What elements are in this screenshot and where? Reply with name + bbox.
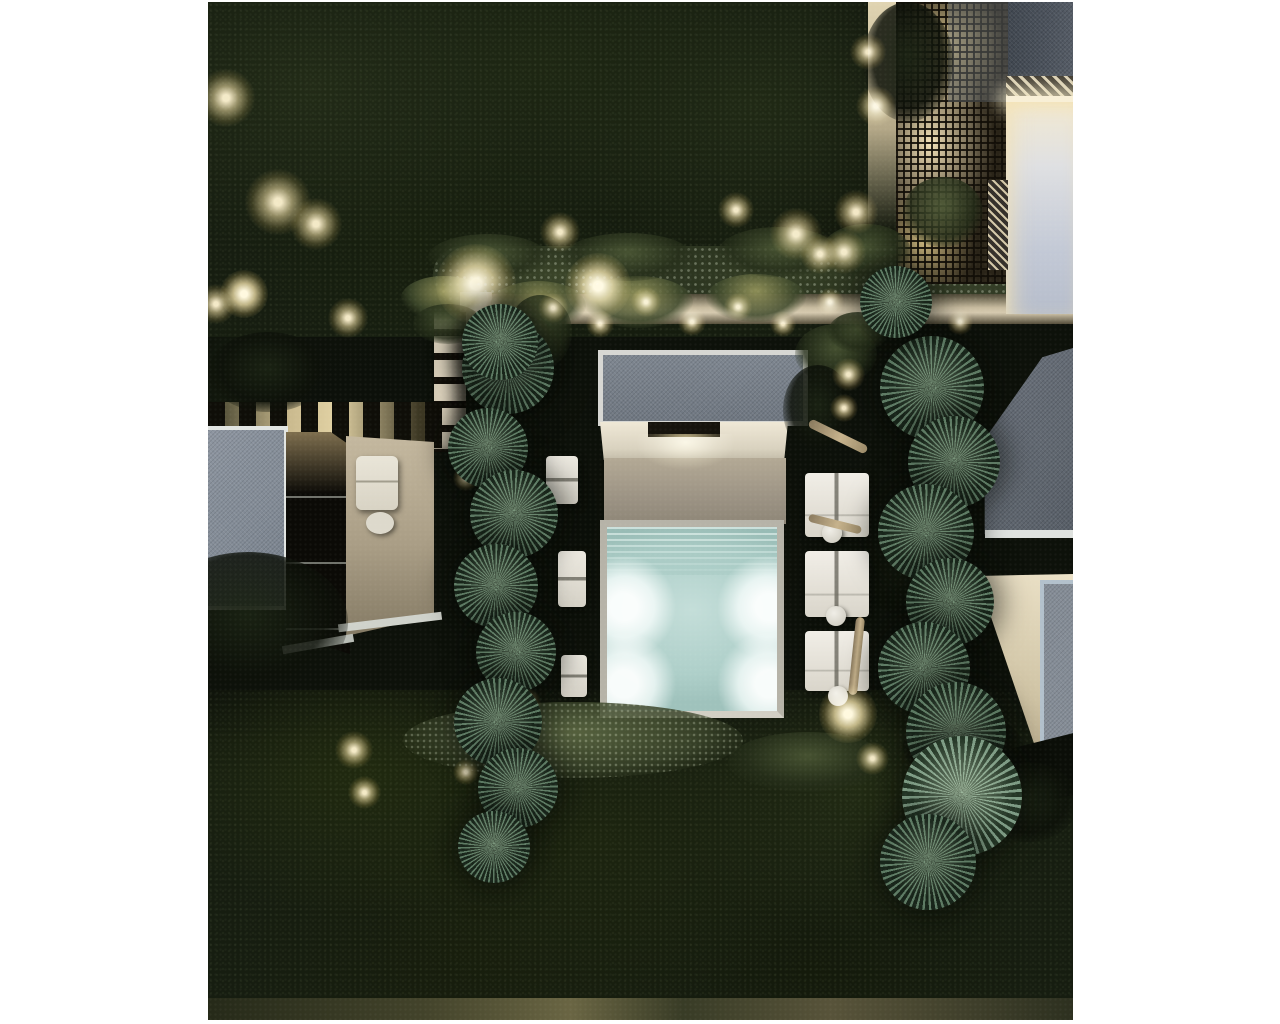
terrace-ottoman <box>366 512 394 534</box>
bush <box>428 234 548 280</box>
pool-underwater-light <box>607 630 678 711</box>
bush <box>863 2 953 122</box>
louvered-roof-strip <box>1006 76 1073 98</box>
bush <box>718 227 838 277</box>
bush <box>728 732 888 792</box>
pool-house-roof <box>598 350 808 426</box>
pool-underwater-light <box>715 630 777 711</box>
aerial-night-villa-photo <box>208 2 1073 1020</box>
palm-tree <box>880 814 976 910</box>
pool-house-downlight-glow <box>628 434 743 519</box>
pool-water <box>607 527 777 711</box>
palm-tree <box>860 266 932 338</box>
louvered-panel <box>988 180 1008 270</box>
side-table <box>826 606 846 626</box>
neighbor-wall <box>1006 102 1073 314</box>
lattice-unlit-corner <box>948 2 1010 102</box>
bottom-grass-strip <box>208 998 1073 1020</box>
right-villa-roof-edge <box>985 530 1073 538</box>
terrace-lounge-chair <box>356 456 398 510</box>
bush <box>903 177 983 247</box>
palm-tree <box>462 304 538 380</box>
sun-lounger <box>561 655 587 697</box>
bush <box>706 274 806 322</box>
bush <box>583 276 693 328</box>
bush <box>563 233 693 281</box>
sun-lounger <box>558 551 586 607</box>
neighbor-roof-dark <box>1008 2 1073 78</box>
page <box>0 0 1280 1024</box>
palm-tree <box>458 811 530 883</box>
side-table <box>828 686 848 706</box>
bush <box>208 332 328 412</box>
